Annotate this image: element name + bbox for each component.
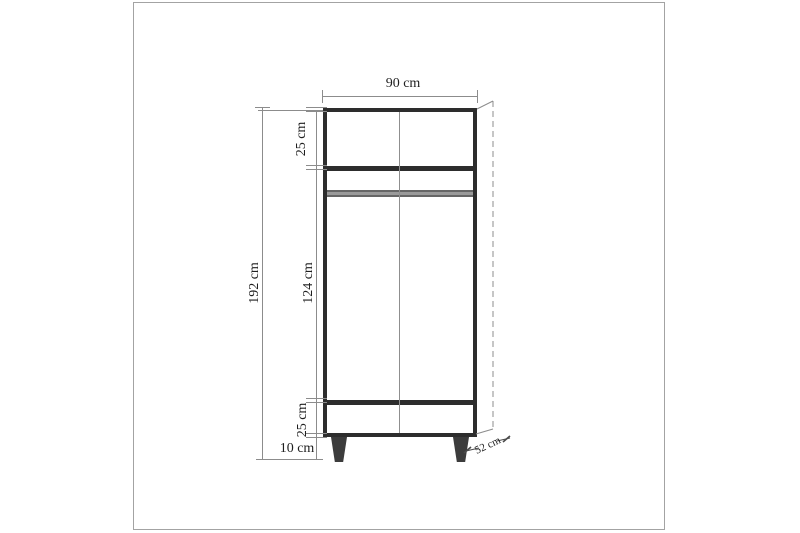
extension-line-floor	[256, 459, 323, 460]
top-shelf-divider	[327, 166, 473, 171]
total-height-dim-tick-top	[255, 107, 270, 108]
dim-label-middle-section: 124 cm	[302, 262, 316, 304]
width-dimension-line	[323, 96, 478, 97]
dim-label-drawer-section: 25 cm	[296, 403, 310, 438]
total-height-dimension-line	[262, 107, 263, 460]
technical-drawing-canvas: 90 cm 25 cm 192 cm 124 cm 25 cm 10 cm 52…	[0, 0, 800, 533]
width-dim-tick-right	[477, 90, 478, 103]
wardrobe-outline	[323, 108, 477, 437]
dim-label-leg-height: 10 cm	[280, 442, 315, 456]
section-tick	[306, 107, 327, 108]
hanging-rail	[327, 190, 473, 197]
section-tick	[306, 398, 327, 399]
dim-label-total-height: 192 cm	[248, 262, 262, 304]
section-tick	[306, 169, 327, 170]
dim-label-width: 90 cm	[386, 77, 421, 91]
section-tick	[306, 111, 327, 112]
section-dimension-line	[316, 110, 317, 460]
dim-label-top-section: 25 cm	[295, 122, 309, 157]
width-dim-tick-left	[322, 90, 323, 103]
drawer-divider	[327, 400, 473, 405]
section-tick	[306, 165, 327, 166]
door-split-line	[399, 112, 400, 433]
